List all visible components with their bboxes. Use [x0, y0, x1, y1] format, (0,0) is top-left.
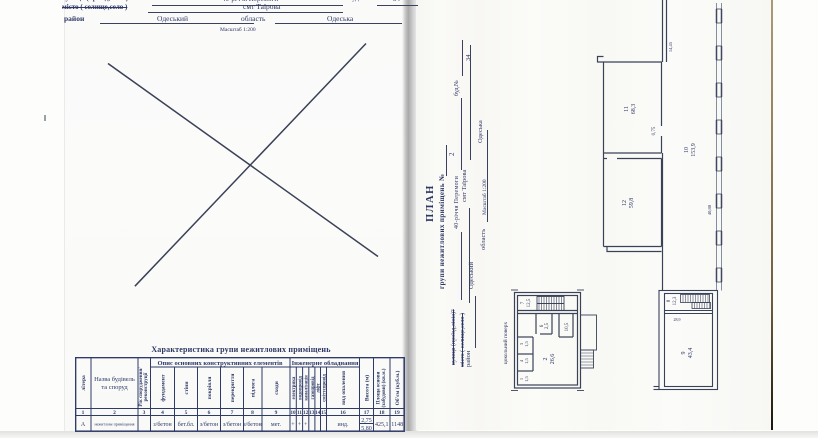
svg-text:+: +	[304, 422, 308, 428]
svg-text:стіни: стіни	[184, 381, 190, 395]
svg-text:Висота (м): Висота (м)	[364, 375, 371, 401]
svg-text:+: +	[298, 422, 302, 428]
svg-text:вид опалення: вид опалення	[341, 371, 347, 405]
svg-text:10: 10	[291, 411, 297, 416]
svg-text:фундамент: фундамент	[160, 374, 167, 401]
svg-text:реконструції: реконструції	[144, 372, 149, 401]
svg-text:12,3: 12,3	[673, 296, 678, 305]
svg-text:перекриття: перекриття	[230, 374, 236, 403]
svg-text:68,3: 68,3	[631, 104, 637, 115]
svg-text:водопровід: водопровід	[298, 376, 303, 400]
svg-text:2,5: 2,5	[545, 322, 550, 329]
svg-text:1,5: 1,5	[524, 375, 530, 381]
svg-text:бет.бл.: бет.бл.	[178, 421, 195, 428]
svg-text:7: 7	[231, 410, 234, 416]
svg-text:ліфт: ліфт	[317, 383, 322, 393]
svg-text:(забудови) (кв.м.): (забудови) (кв.м.)	[382, 368, 387, 407]
svg-text:з/бетон: з/бетон	[243, 421, 262, 428]
svg-text:Інженерне обладнання: Інженерне обладнання	[292, 360, 359, 367]
svg-text:43,4: 43,4	[688, 348, 694, 359]
svg-text:2: 2	[543, 358, 549, 361]
svg-text:5: 5	[185, 410, 188, 416]
svg-text:9: 9	[275, 410, 278, 416]
svg-text:з/бетон: з/бетон	[223, 421, 242, 428]
svg-text:покрівля: покрівля	[207, 377, 213, 400]
svg-text:цокольний поверх: цокольний поверх	[502, 322, 509, 365]
svg-text:14,45: 14,45	[668, 41, 674, 52]
svg-text:Назва будівель: Назва будівель	[94, 376, 135, 383]
svg-text:1,5: 1,5	[524, 357, 530, 363]
svg-text:Площа основи: Площа основи	[377, 372, 382, 405]
svg-text:11: 11	[624, 106, 630, 112]
svg-text:Опис основних конструктивних е: Опис основних конструктивних елементів	[157, 360, 283, 367]
svg-text:4: 4	[161, 410, 164, 416]
svg-text:18: 18	[379, 410, 385, 416]
svg-text:Об'єм (куб.м.): Об'єм (куб.м.)	[394, 370, 401, 405]
svg-text:10,5: 10,5	[565, 322, 570, 331]
svg-text:7: 7	[521, 301, 526, 304]
svg-text:літера: літера	[81, 375, 87, 391]
svg-text:1: 1	[82, 410, 85, 416]
svg-text:8: 8	[667, 299, 672, 302]
svg-text:9: 9	[681, 352, 687, 355]
svg-text:та споруд: та споруд	[101, 384, 128, 391]
svg-text:5,80: 5,80	[361, 426, 372, 432]
svg-text:425,1: 425,1	[375, 422, 389, 428]
svg-text:нежитлове приміщення: нежитлове приміщення	[94, 422, 134, 427]
svg-text:13: 13	[309, 411, 315, 416]
svg-text:инд.: инд.	[338, 422, 349, 428]
svg-text:мет.: мет.	[271, 422, 282, 428]
svg-text:електрика: електрика	[292, 376, 297, 399]
svg-text:0,75: 0,75	[652, 126, 657, 135]
svg-text:12: 12	[303, 411, 309, 416]
svg-text:1148: 1148	[391, 422, 403, 428]
svg-text:10: 10	[684, 147, 690, 153]
svg-text:17: 17	[364, 410, 370, 416]
svg-text:8: 8	[251, 410, 254, 416]
svg-text:каналізація: каналізація	[305, 375, 310, 401]
svg-text:з/бетон: з/бетон	[200, 421, 219, 428]
svg-text:12,5: 12,5	[527, 298, 532, 307]
svg-text:14: 14	[315, 411, 321, 416]
svg-text:15: 15	[321, 411, 327, 416]
svg-text:3: 3	[143, 410, 146, 416]
svg-text:А: А	[81, 422, 86, 428]
svg-text:+: +	[291, 422, 295, 428]
svg-text:153,9: 153,9	[691, 143, 697, 157]
svg-text:сходи: сходи	[274, 380, 280, 394]
svg-text:2,75: 2,75	[361, 418, 372, 424]
svg-text:19: 19	[394, 410, 400, 416]
svg-text:сміттєпровід: сміттєпровід	[323, 374, 328, 402]
svg-text:підлога: підлога	[251, 378, 257, 397]
svg-text:28,9: 28,9	[674, 317, 681, 323]
svg-text:16: 16	[340, 410, 346, 416]
svg-text:11: 11	[297, 411, 302, 416]
svg-text:1,5: 1,5	[524, 340, 530, 346]
svg-text:12: 12	[622, 200, 628, 206]
svg-text:59,8: 59,8	[629, 198, 635, 209]
svg-text:2: 2	[113, 410, 116, 416]
svg-text:6: 6	[208, 410, 211, 416]
svg-text:з/бетон: з/бетон	[153, 421, 172, 428]
svg-text:газопровід: газопровід	[311, 376, 316, 400]
svg-text:40,80: 40,80	[707, 204, 713, 215]
svg-text:26,6: 26,6	[550, 354, 556, 365]
